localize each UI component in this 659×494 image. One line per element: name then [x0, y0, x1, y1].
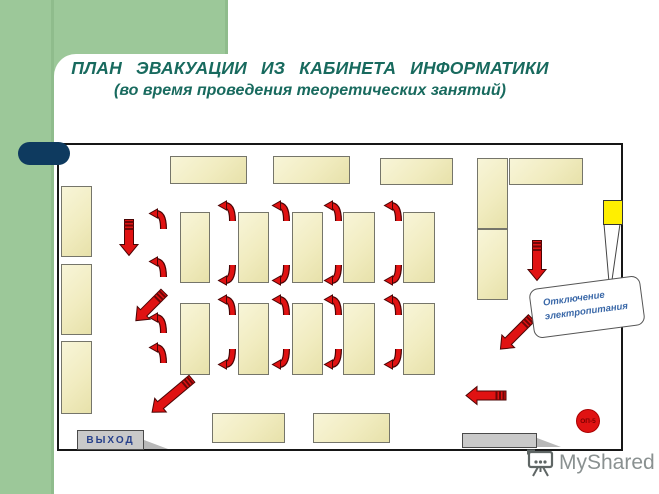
evacuation-turn-arrow — [218, 200, 236, 222]
desk — [313, 413, 390, 443]
evacuation-turn-arrow — [384, 200, 402, 222]
evacuation-turn-arrow — [218, 348, 236, 370]
desk — [273, 156, 350, 184]
exit-door: ВЫХОД — [77, 430, 144, 450]
evacuation-turn-arrow — [272, 348, 290, 370]
evacuation-turn-arrow — [149, 256, 167, 278]
desk — [61, 264, 92, 335]
desk — [477, 158, 508, 229]
desk — [403, 212, 435, 283]
desk — [238, 303, 269, 375]
evacuation-turn-arrow — [324, 294, 342, 316]
watermark: MyShared — [525, 448, 655, 477]
desk — [170, 156, 247, 184]
evacuation-turn-arrow — [149, 312, 167, 334]
desk — [343, 212, 375, 283]
evacuation-turn-arrow — [272, 200, 290, 222]
evacuation-turn-arrow — [324, 348, 342, 370]
desk — [180, 303, 210, 375]
evacuation-arrow — [119, 218, 140, 256]
myshared-logo-icon — [525, 448, 555, 477]
bullet-accent-bar — [18, 142, 70, 165]
evacuation-arrow — [465, 385, 507, 406]
evacuation-arrow — [145, 370, 200, 421]
fire-extinguisher-marker: ОП-5 — [576, 409, 600, 433]
desk — [343, 303, 375, 375]
evacuation-turn-arrow — [149, 342, 167, 364]
room-contents: ВЫХОД — [0, 0, 659, 494]
desk — [292, 303, 323, 375]
evacuation-turn-arrow — [272, 264, 290, 286]
desk — [509, 158, 583, 185]
desk — [380, 158, 453, 185]
evacuation-turn-arrow — [149, 208, 167, 230]
evacuation-turn-arrow — [324, 264, 342, 286]
evacuation-turn-arrow — [218, 294, 236, 316]
desk — [180, 212, 210, 283]
door — [462, 433, 537, 448]
evacuation-turn-arrow — [384, 294, 402, 316]
evacuation-turn-arrow — [218, 264, 236, 286]
watermark-text: MyShared — [559, 451, 655, 475]
evacuation-plan-slide: ПЛАН ЭВАКУАЦИИ ИЗ КАБИНЕТА ИНФОРМАТИКИ (… — [0, 0, 659, 494]
desk — [477, 229, 508, 300]
evacuation-turn-arrow — [272, 294, 290, 316]
door-shadow — [537, 435, 563, 449]
desk — [61, 341, 92, 414]
door-shadow — [144, 437, 170, 451]
desk — [61, 186, 92, 257]
desk — [212, 413, 285, 443]
desk — [403, 303, 435, 375]
evacuation-arrow — [527, 239, 548, 281]
evacuation-turn-arrow — [384, 348, 402, 370]
evacuation-turn-arrow — [384, 264, 402, 286]
evacuation-turn-arrow — [324, 200, 342, 222]
desk — [238, 212, 269, 283]
power-switch-panel — [603, 200, 623, 225]
exit-door-label: ВЫХОД — [86, 435, 134, 446]
desk — [292, 212, 323, 283]
